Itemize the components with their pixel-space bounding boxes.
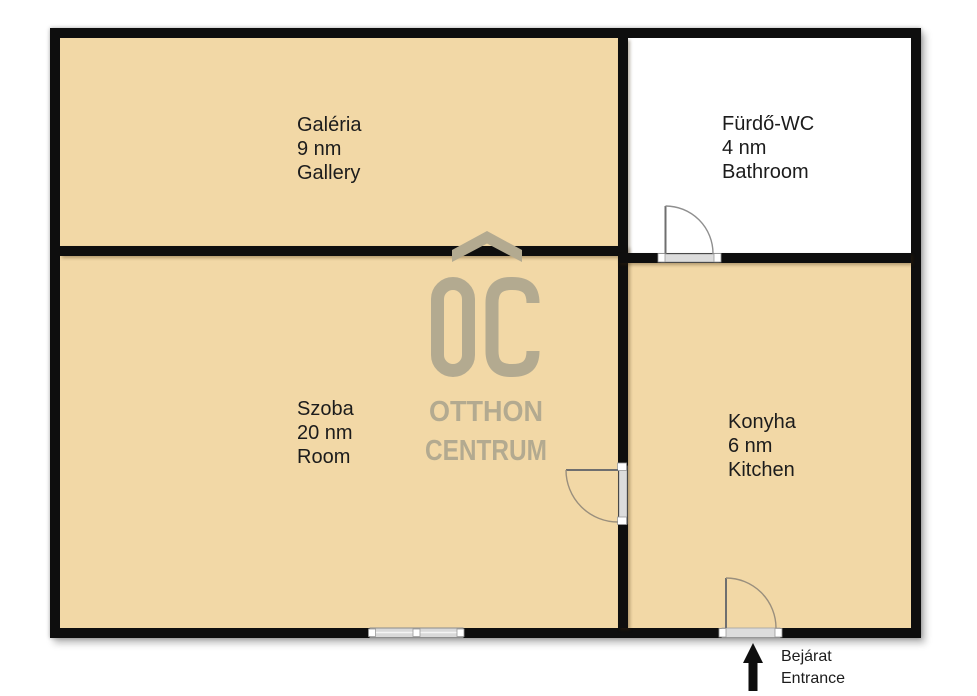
room-name-local: Konyha: [728, 410, 796, 434]
wall-bathroom-kitchen-divider: [618, 253, 911, 263]
room-name-en: Room: [297, 445, 354, 469]
room-label-room: Szoba 20 nm Room: [297, 397, 354, 469]
room-name-local: Fürdő-WC: [722, 112, 814, 136]
wall-gallery-room-divider: [60, 246, 628, 256]
room-area: 20 nm: [297, 421, 354, 445]
room-area: 6 nm: [728, 434, 796, 458]
entrance-label-local: Bejárat: [781, 646, 845, 668]
room-name-en: Bathroom: [722, 160, 814, 184]
floorplan-canvas: OTTHON CENTRUM Galéria 9 nm Gallery Fürd…: [0, 0, 977, 696]
room-name-local: Szoba: [297, 397, 354, 421]
entrance-label: Bejárat Entrance: [781, 646, 845, 690]
entrance-arrow-icon: [743, 643, 763, 691]
entrance-label-en: Entrance: [781, 668, 845, 690]
room-area: 9 nm: [297, 137, 361, 161]
wall-vertical-divider: [618, 38, 628, 628]
room-label-bathroom: Fürdő-WC 4 nm Bathroom: [722, 112, 814, 184]
room-label-kitchen: Konyha 6 nm Kitchen: [728, 410, 796, 482]
room-area: 4 nm: [722, 136, 814, 160]
room-label-gallery: Galéria 9 nm Gallery: [297, 113, 361, 185]
room-name-en: Kitchen: [728, 458, 796, 482]
room-name-en: Gallery: [297, 161, 361, 185]
room-name-local: Galéria: [297, 113, 361, 137]
